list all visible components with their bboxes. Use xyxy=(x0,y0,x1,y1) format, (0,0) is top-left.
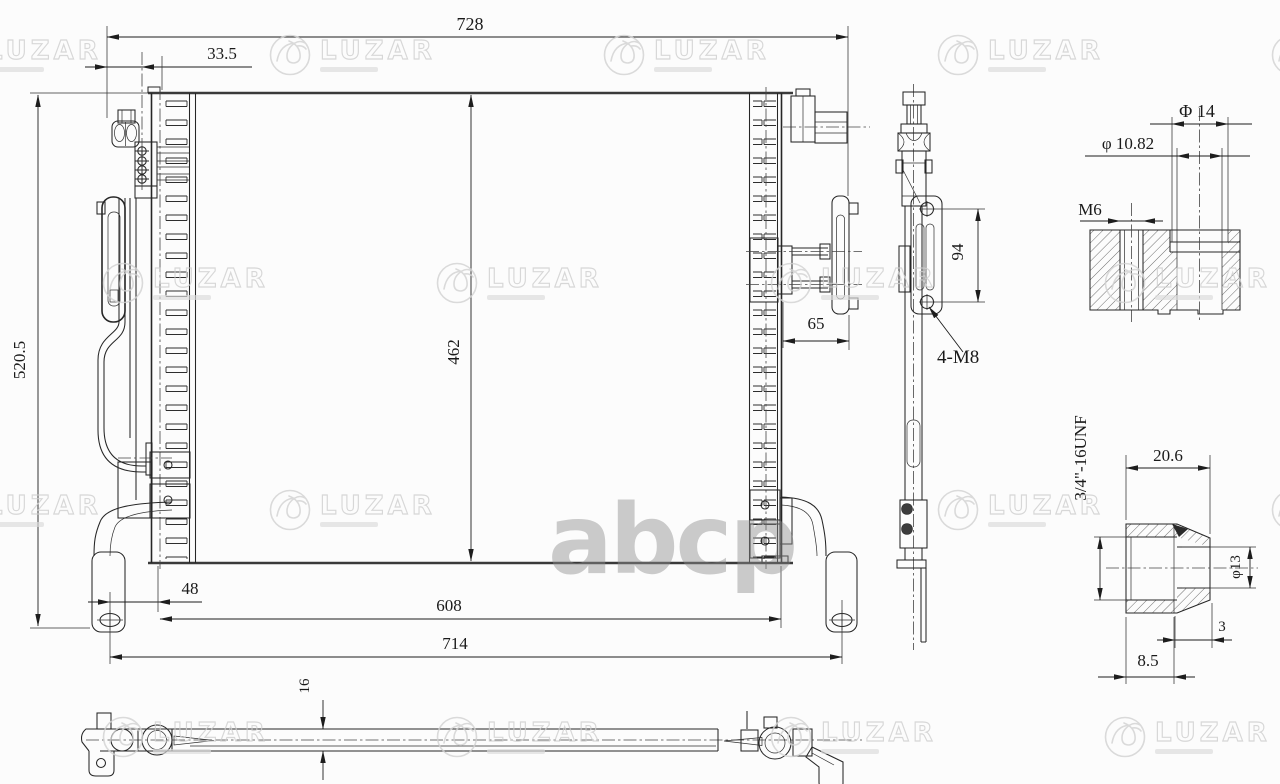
drawing-page: { "document": {"type": "engineering-draw… xyxy=(0,0,1280,784)
dim-boss-outer-dia-label: Φ 14 xyxy=(1179,101,1215,121)
front-view xyxy=(92,87,870,632)
dim-fitting-bore-label: φ13 xyxy=(1228,555,1244,579)
dim-foot-offset-label: 48 xyxy=(182,579,199,598)
dim-core-height-label: 462 xyxy=(444,339,463,365)
dim-hole-spacing-label: 94 xyxy=(948,243,967,261)
dim-bracket-depth-label: 65 xyxy=(808,314,825,333)
dim-pipe-offset-label: 33.5 xyxy=(207,44,237,63)
bottom-view: 16 xyxy=(82,678,863,784)
fitting-detail-view: 20.6 3/4"-16UNF φ13 3 8.5 xyxy=(1071,415,1258,684)
dim-plate-thickness-label: 16 xyxy=(297,678,313,694)
dim-overall-width-label: 728 xyxy=(457,14,484,34)
technical-drawing-canvas: 728 33.5 520.5 462 65 48 608 714 xyxy=(0,0,1280,784)
dim-core-width-label: 608 xyxy=(436,596,462,615)
dim-mount-thread-label: 4-M8 xyxy=(937,347,979,368)
dim-fitting-depth-label: 8.5 xyxy=(1137,651,1158,670)
dim-mount-width-label: 714 xyxy=(442,634,468,653)
dim-fitting-thread-label: 3/4"-16UNF xyxy=(1071,415,1090,500)
dim-fitting-length-label: 20.6 xyxy=(1153,446,1183,465)
boss-detail-view: Φ 14 φ 10.82 M6 xyxy=(1078,101,1252,322)
side-view: 94 4-M8 xyxy=(896,84,985,650)
dim-boss-bore-dia-label: φ 10.82 xyxy=(1102,134,1154,153)
dim-overall-height-label: 520.5 xyxy=(10,341,29,379)
dim-fitting-step-label: 3 xyxy=(1218,619,1226,635)
dim-boss-thread-label: M6 xyxy=(1078,200,1102,219)
